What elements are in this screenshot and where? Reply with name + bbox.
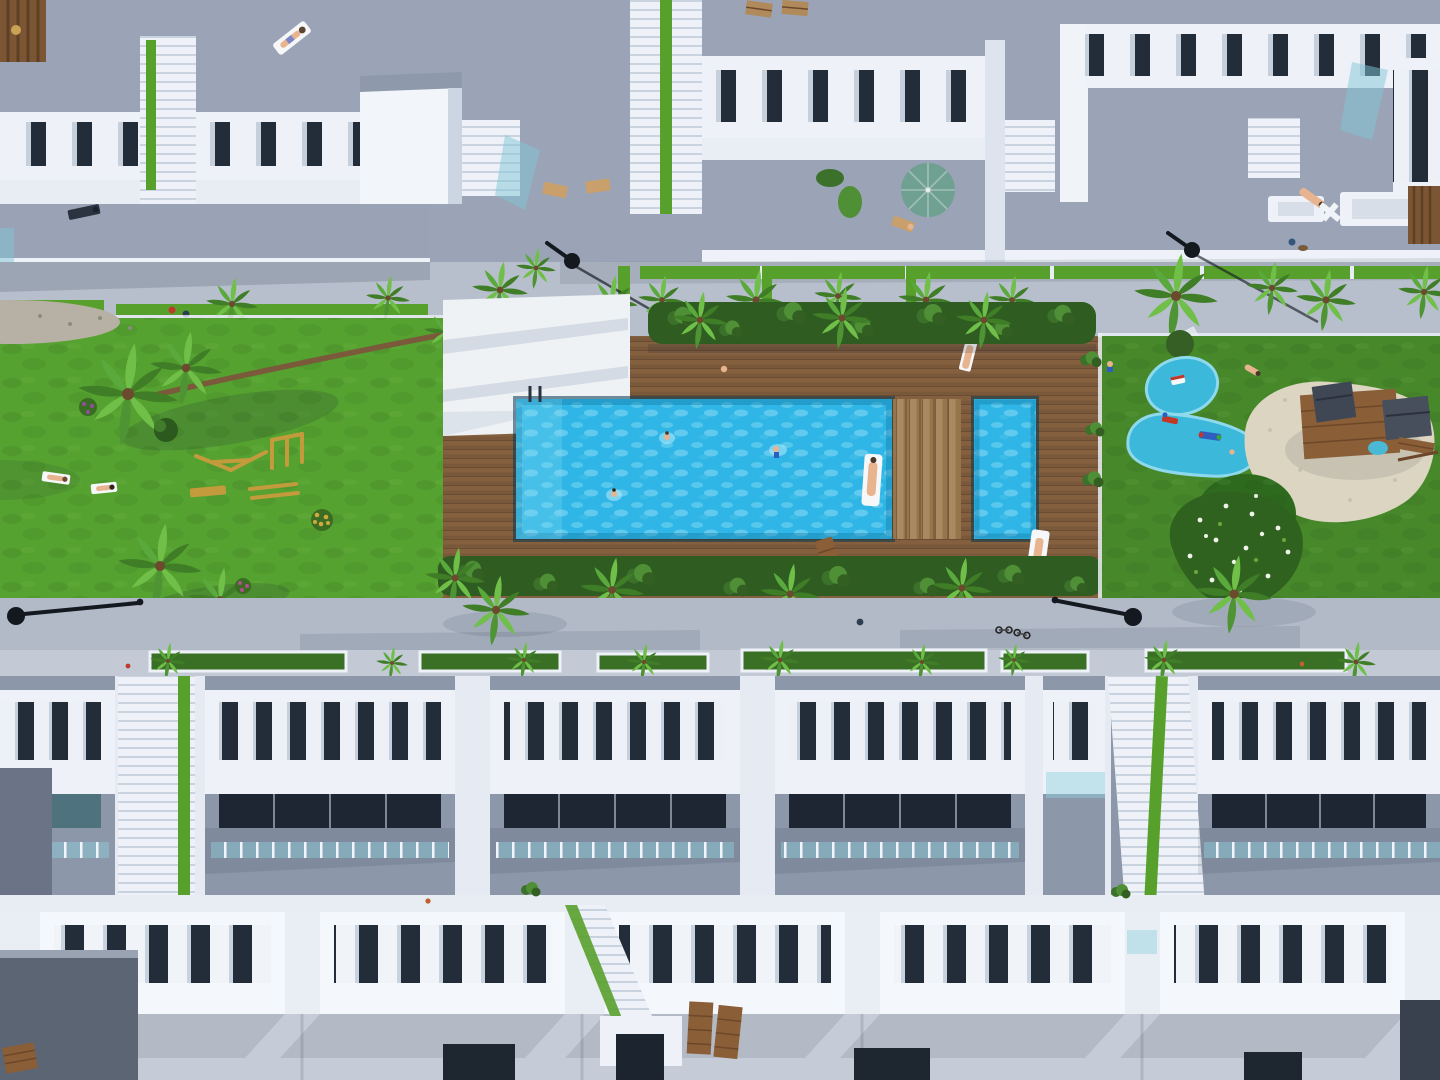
foreground-roofs: [0, 882, 1440, 1080]
parapet-frame: [1160, 912, 1405, 1014]
scene-canvas: [0, 0, 1440, 1080]
walker: [857, 619, 864, 626]
terrace-unit: [205, 690, 455, 874]
dark-roof-leftedge: [0, 768, 52, 908]
kids-pool: [971, 396, 1039, 542]
mini-pond: [1368, 441, 1388, 455]
terrace-unit: [775, 690, 1025, 874]
hanging-plant: [816, 169, 844, 187]
left-lawn: [0, 300, 468, 634]
parapet-frame: [320, 912, 565, 1014]
stair-alley-a-left: [118, 676, 195, 905]
stair-alley-center: [630, 0, 702, 214]
terrace-unit: [490, 690, 740, 874]
terrace-unit-fragment: [1043, 690, 1105, 798]
aerial-render-stage: [0, 0, 1440, 1080]
glass-canopy: [1127, 930, 1157, 954]
timber-lounger: [2, 1042, 38, 1073]
terrace-unit: [1198, 690, 1440, 874]
walker: [1289, 239, 1296, 246]
main-pool: [513, 386, 895, 542]
parapet-frame: [880, 912, 1125, 1014]
flower-cluster-purple: [235, 578, 251, 594]
bush: [1166, 330, 1194, 358]
parasol: [901, 163, 955, 217]
stair-alley-a-right: [1108, 676, 1205, 905]
stair-alley-topleft: [140, 36, 196, 204]
deck-walker: [721, 366, 727, 372]
pool-float: [861, 453, 883, 506]
flower-cluster-yellow: [311, 509, 333, 531]
child: [1107, 361, 1113, 367]
flower-cluster-purple: [79, 398, 97, 416]
pool-steps: [893, 399, 961, 539]
right-lawn: [1080, 330, 1440, 632]
bottom-terrace-row: [0, 676, 1440, 908]
